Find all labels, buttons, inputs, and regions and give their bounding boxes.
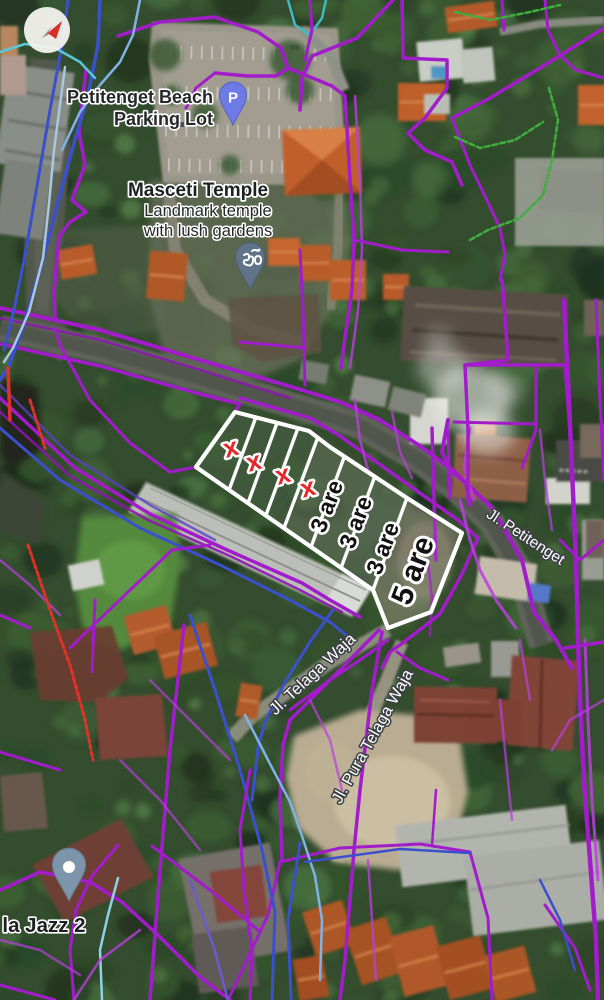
svg-text:with lush gardens: with lush gardens (143, 222, 272, 240)
svg-text:la Jazz 2: la Jazz 2 (2, 914, 85, 937)
svg-text:Masceti Temple: Masceti Temple (128, 180, 268, 201)
svg-text:Parking Lot: Parking Lot (114, 109, 213, 129)
svg-text:P: P (228, 90, 238, 107)
svg-text:Petitenget Beach: Petitenget Beach (67, 87, 213, 107)
svg-text:Landmark temple: Landmark temple (144, 202, 271, 220)
